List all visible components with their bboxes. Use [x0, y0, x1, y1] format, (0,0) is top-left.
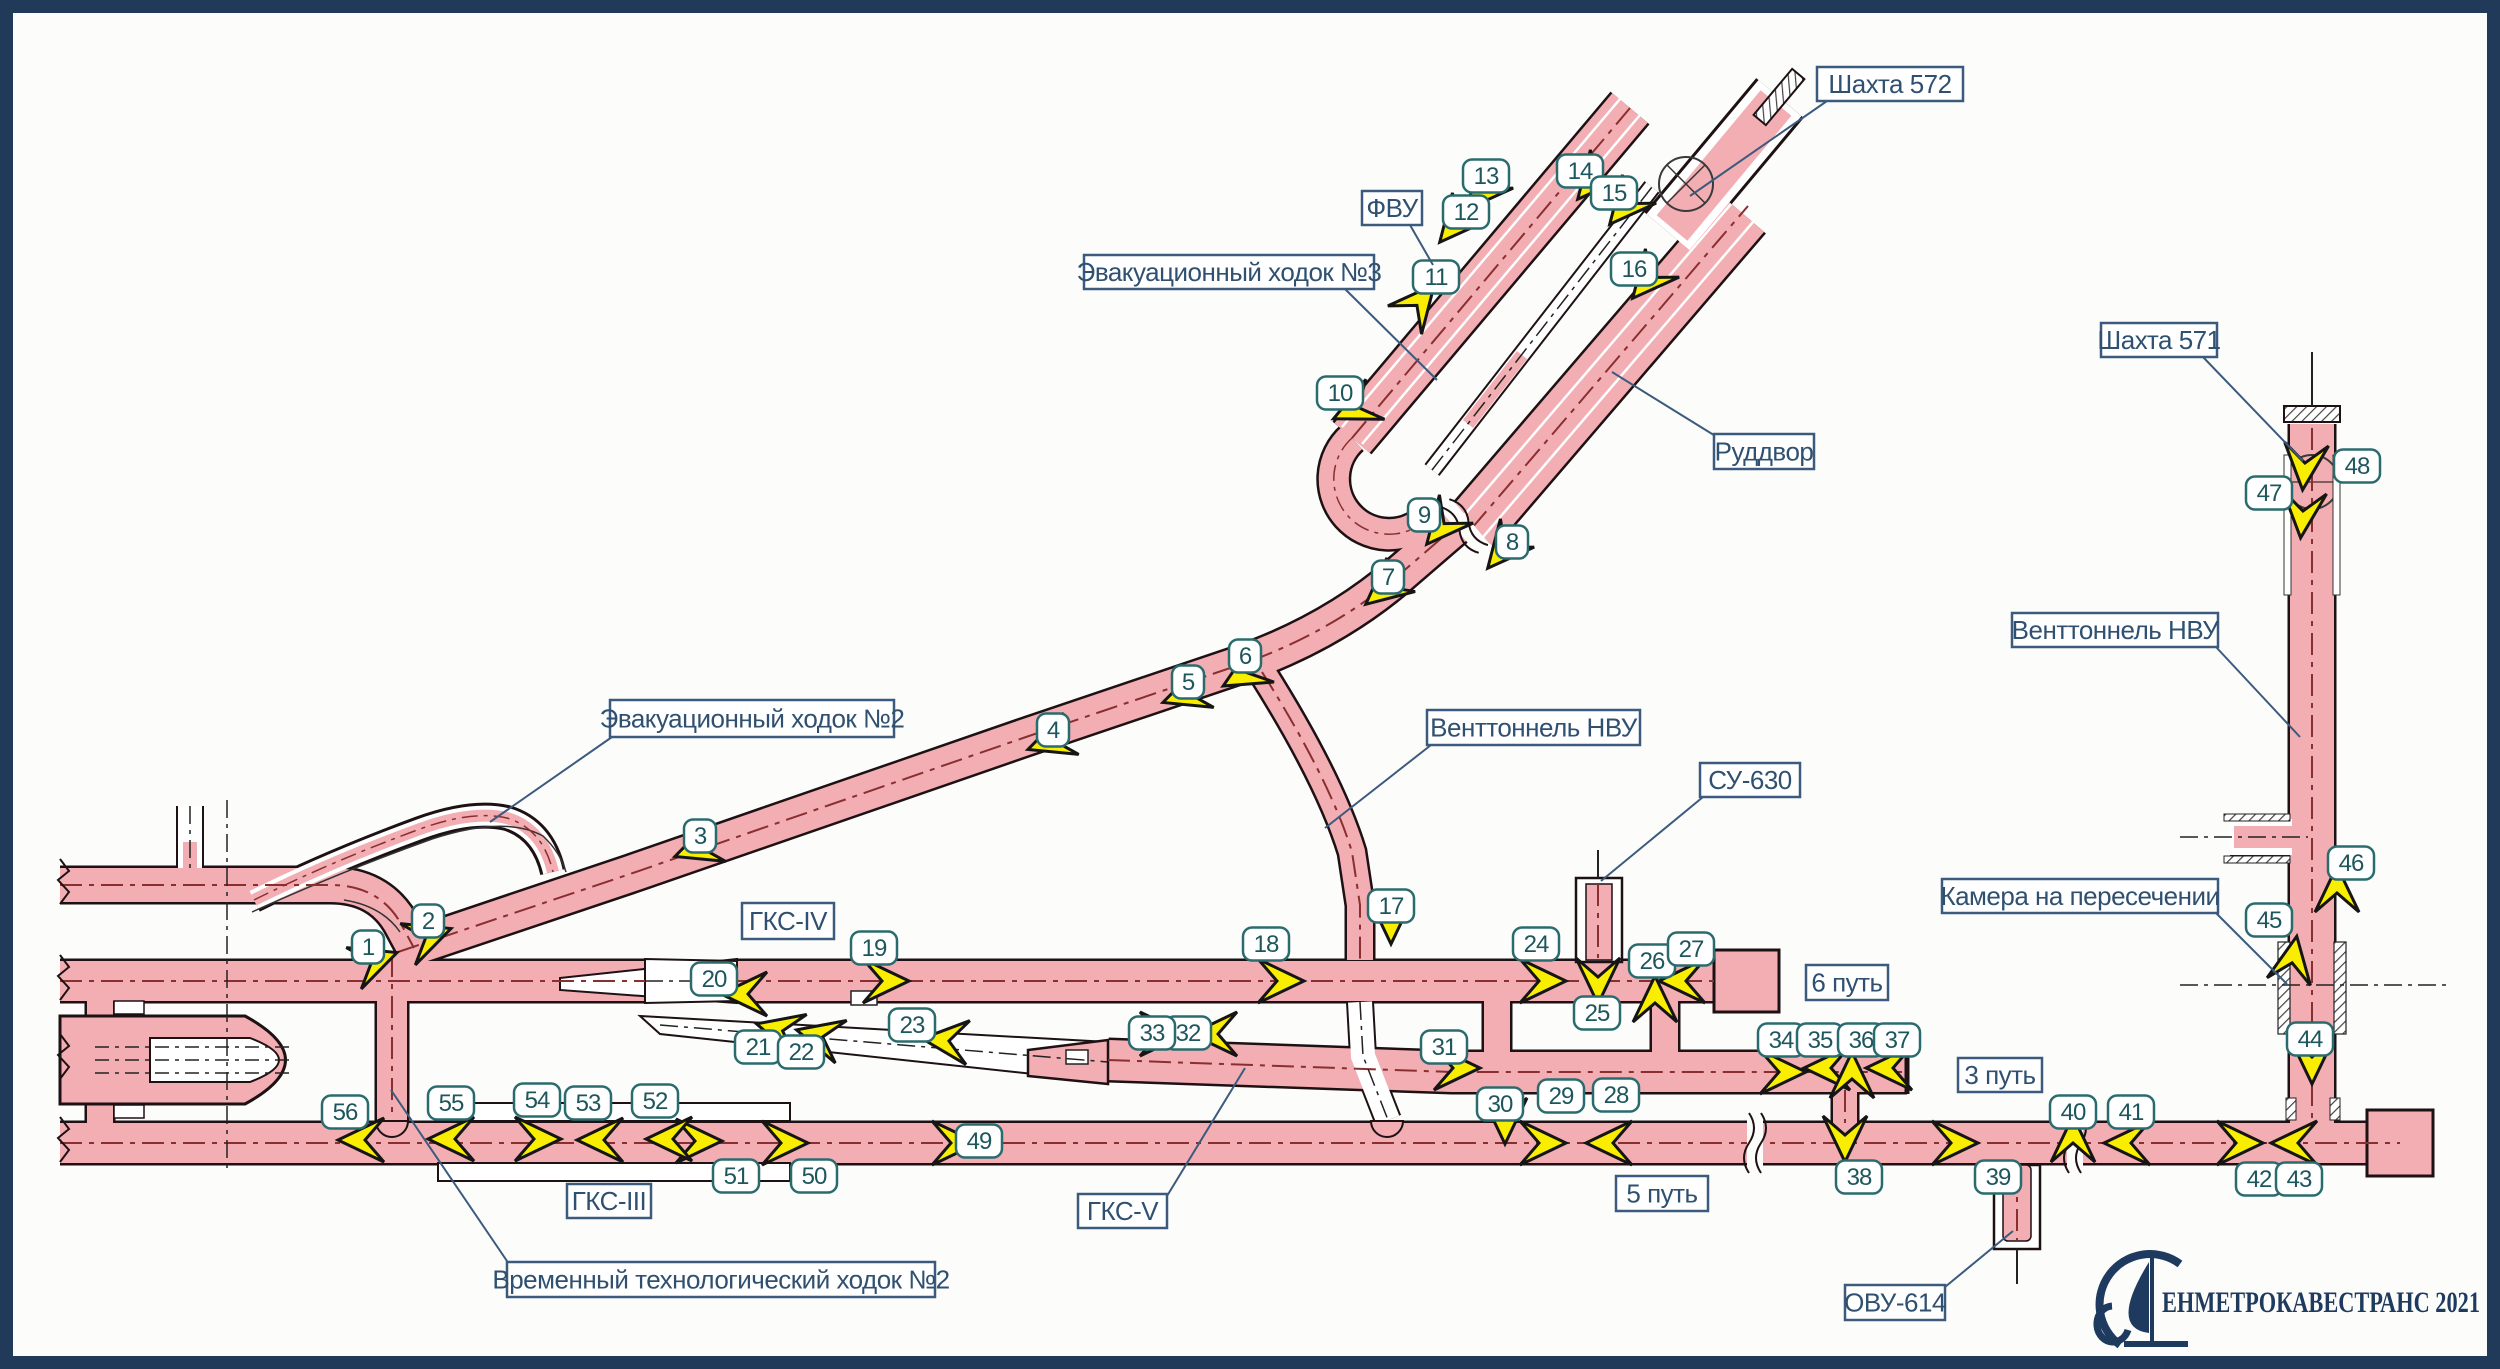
label-text: Эвакуационный ходок №3: [1077, 257, 1382, 287]
marker-number: 26: [1640, 948, 1665, 975]
label-text: Временный технологический ходок №2: [492, 1265, 949, 1295]
logo-text: ЕНМЕТРОКАВЕСТРАНС 2021: [2162, 1286, 2480, 1319]
marker-46: 46: [2328, 847, 2374, 880]
marker-number: 49: [967, 1128, 992, 1155]
label-gks-4: ГКС-IV: [742, 903, 834, 939]
marker-50: 50: [791, 1160, 837, 1193]
marker-47: 47: [2246, 477, 2292, 510]
marker-9: 9: [1408, 499, 1440, 532]
marker-39: 39: [1975, 1161, 2021, 1194]
marker-28: 28: [1593, 1079, 1639, 1112]
label-text: Венттоннель НВУ: [2012, 615, 2220, 645]
marker-number: 28: [1604, 1082, 1629, 1109]
marker-54: 54: [514, 1084, 560, 1117]
label-text: ФВУ: [1366, 193, 1418, 223]
marker-number: 25: [1585, 1000, 1610, 1027]
marker-40: 40: [2050, 1096, 2096, 1129]
marker-10: 10: [1317, 377, 1363, 410]
marker-number: 31: [1432, 1034, 1457, 1061]
marker-number: 17: [1379, 893, 1404, 920]
label-text: 5 путь: [1626, 1179, 1697, 1209]
marker-37: 37: [1874, 1024, 1920, 1057]
marker-19: 19: [851, 932, 897, 965]
marker-number: 36: [1849, 1027, 1874, 1054]
label-text: Камера на пересечении: [1940, 881, 2219, 911]
marker-number: 3: [694, 823, 707, 850]
marker-51: 51: [713, 1160, 759, 1193]
marker-33: 33: [1129, 1017, 1175, 1050]
marker-number: 12: [1454, 199, 1479, 226]
marker-11: 11: [1413, 261, 1459, 294]
marker-number: 48: [2345, 453, 2370, 480]
label-text: Эвакуационный ходок №2: [600, 704, 905, 734]
label-text: ГКС-V: [1087, 1196, 1159, 1226]
marker-number: 15: [1602, 180, 1627, 207]
marker-45: 45: [2246, 904, 2292, 937]
marker-number: 9: [1418, 502, 1431, 529]
marker-number: 20: [702, 966, 727, 993]
label-text: Шахта 571: [2097, 325, 2220, 355]
marker-29: 29: [1538, 1080, 1584, 1113]
marker-number: 51: [724, 1163, 749, 1190]
marker-number: 37: [1885, 1027, 1910, 1054]
marker-38: 38: [1836, 1161, 1882, 1194]
marker-number: 27: [1679, 936, 1704, 963]
marker-number: 43: [2287, 1166, 2312, 1193]
marker-7: 7: [1372, 561, 1404, 594]
marker-number: 7: [1382, 564, 1395, 591]
marker-number: 47: [2257, 480, 2282, 507]
label-gks-3: ГКС-III: [567, 1184, 651, 1218]
marker-35: 35: [1797, 1024, 1843, 1057]
marker-number: 4: [1047, 717, 1060, 744]
marker-52: 52: [632, 1085, 678, 1118]
label-track-3: 3 путь: [1958, 1058, 2042, 1092]
marker-24: 24: [1513, 928, 1559, 961]
marker-number: 10: [1328, 380, 1353, 407]
marker-number: 35: [1808, 1027, 1833, 1054]
label-text: 3 путь: [1964, 1060, 2035, 1090]
label-text: СУ-630: [1708, 765, 1792, 795]
marker-number: 22: [789, 1039, 814, 1066]
marker-number: 46: [2339, 850, 2364, 877]
label-text: Шахта 572: [1828, 69, 1951, 99]
marker-number: 50: [802, 1163, 827, 1190]
label-text: Руддвор: [1715, 437, 1814, 467]
chamber-wall: [2334, 942, 2346, 1034]
marker-number: 55: [439, 1090, 464, 1117]
marker-5: 5: [1172, 666, 1204, 699]
marker-8: 8: [1496, 526, 1528, 559]
marker-number: 33: [1140, 1020, 1165, 1047]
marker-number: 6: [1239, 643, 1252, 670]
label-track-5: 5 путь: [1616, 1176, 1708, 1211]
marker-number: 23: [900, 1012, 925, 1039]
marker-48: 48: [2334, 450, 2380, 483]
marker-number: 14: [1568, 158, 1593, 185]
marker-number: 24: [1524, 931, 1549, 958]
marker-number: 42: [2247, 1166, 2272, 1193]
label-text: ГКС-IV: [749, 906, 828, 936]
marker-23: 23: [889, 1009, 935, 1042]
marker-3: 3: [684, 820, 716, 853]
marker-20: 20: [691, 963, 737, 996]
tunnel-scheme-canvas: 1234567891011121314151617181920212223242…: [0, 0, 2500, 1369]
marker-56: 56: [322, 1096, 368, 1129]
marker-49: 49: [956, 1125, 1002, 1158]
marker-number: 21: [746, 1034, 771, 1061]
marker-55: 55: [428, 1087, 474, 1120]
marker-21: 21: [735, 1031, 781, 1064]
marker-43: 43: [2276, 1163, 2322, 1196]
label-text: ОВУ-614: [1844, 1288, 1946, 1318]
marker-number: 39: [1986, 1164, 2011, 1191]
marker-number: 56: [333, 1099, 358, 1126]
marker-number: 41: [2119, 1099, 2144, 1126]
marker-number: 32: [1176, 1020, 1201, 1047]
label-track-6: 6 путь: [1806, 965, 1888, 1000]
marker-number: 8: [1506, 529, 1519, 556]
marker-13: 13: [1463, 160, 1509, 193]
marker-17: 17: [1368, 890, 1414, 923]
marker-number: 13: [1474, 163, 1499, 190]
marker-number: 52: [643, 1088, 668, 1115]
marker-27: 27: [1668, 933, 1714, 966]
drawing-sheet: 1234567891011121314151617181920212223242…: [0, 0, 2500, 1369]
marker-number: 2: [422, 908, 435, 935]
marker-31: 31: [1421, 1031, 1467, 1064]
label-text: ГКС-III: [572, 1186, 647, 1216]
marker-number: 53: [576, 1090, 601, 1117]
marker-number: 29: [1549, 1083, 1574, 1110]
marker-number: 34: [1769, 1027, 1794, 1054]
marker-30: 30: [1477, 1088, 1523, 1121]
label-text: 6 путь: [1811, 968, 1882, 998]
track6-end-block: [1714, 950, 1779, 1012]
marker-number: 11: [1425, 264, 1449, 291]
label-text: Венттоннель НВУ: [1430, 713, 1638, 743]
marker-2: 2: [412, 905, 444, 938]
marker-16: 16: [1611, 253, 1657, 286]
marker-1: 1: [352, 931, 384, 964]
marker-12: 12: [1443, 196, 1489, 229]
marker-number: 30: [1488, 1091, 1513, 1118]
marker-44: 44: [2287, 1023, 2333, 1056]
marker-6: 6: [1229, 640, 1261, 673]
marker-53: 53: [565, 1087, 611, 1120]
marker-41: 41: [2108, 1096, 2154, 1129]
marker-number: 40: [2061, 1099, 2086, 1126]
marker-number: 5: [1182, 669, 1195, 696]
marker-number: 18: [1254, 931, 1279, 958]
marker-25: 25: [1574, 997, 1620, 1030]
marker-number: 45: [2257, 907, 2282, 934]
marker-number: 38: [1847, 1164, 1872, 1191]
marker-number: 44: [2298, 1026, 2323, 1053]
marker-number: 16: [1622, 256, 1647, 283]
marker-15: 15: [1591, 177, 1637, 210]
marker-number: 1: [362, 934, 375, 961]
marker-22: 22: [778, 1036, 824, 1069]
marker-number: 54: [525, 1087, 550, 1114]
marker-4: 4: [1037, 714, 1069, 747]
marker-18: 18: [1243, 928, 1289, 961]
marker-number: 19: [862, 935, 887, 962]
